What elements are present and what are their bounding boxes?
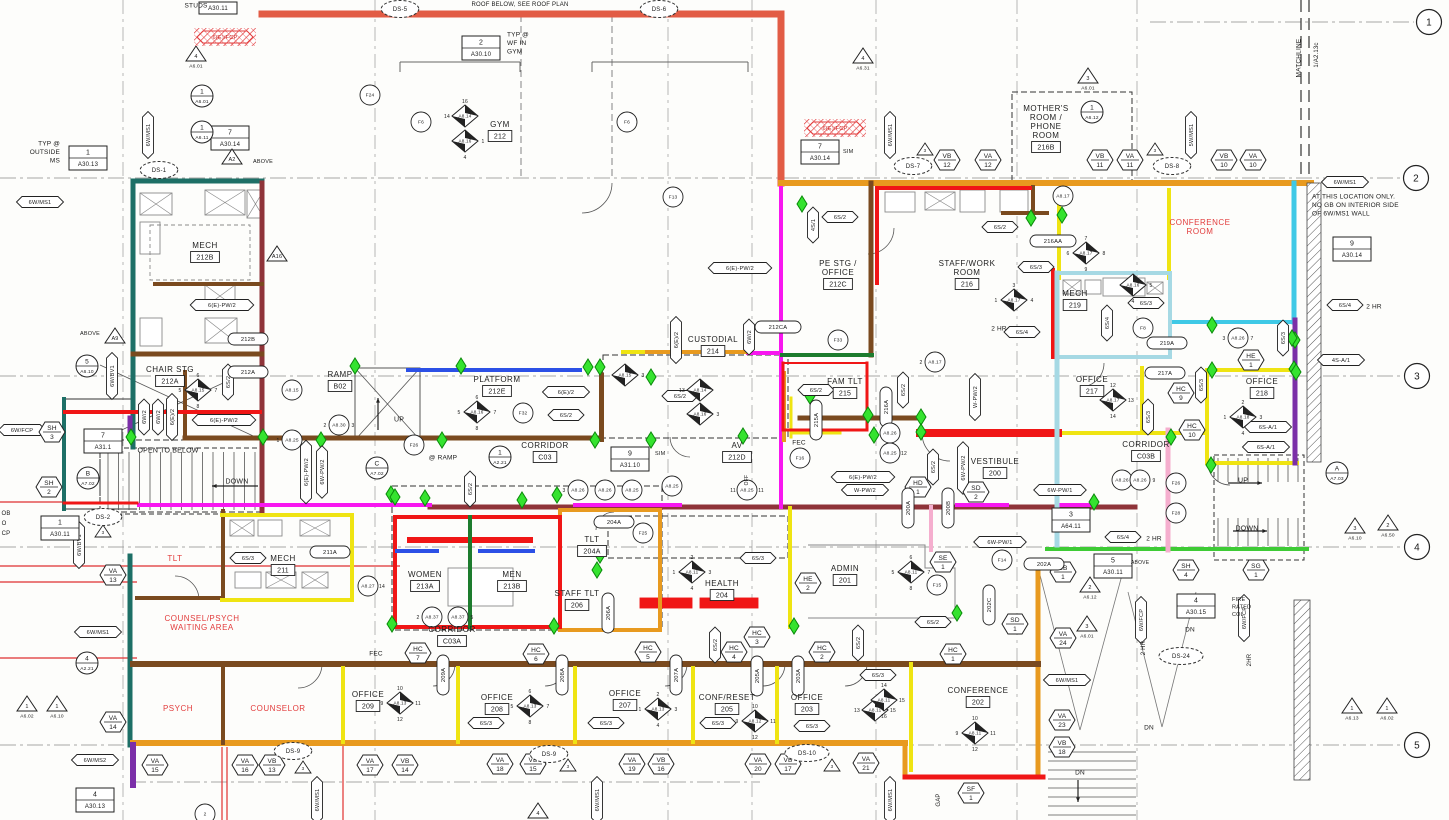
keynote-text: A8.25 [740, 488, 754, 494]
keynote-side-num: 4 [1132, 299, 1135, 305]
ref-number: 1 [200, 88, 204, 95]
tag-text: SD [971, 485, 981, 492]
sheet-number: A30.13 [85, 804, 106, 810]
tag-text: 207A [674, 668, 680, 682]
tag-text: 6W/2 [747, 330, 753, 344]
hatched-wall [1307, 183, 1321, 462]
note-text: 1/A2.13c [1314, 42, 1320, 67]
detail-number: 2 [479, 39, 483, 46]
equipment-box [258, 520, 282, 536]
tag-text: 216AA [1044, 239, 1062, 245]
keynote-side-num: 4 [657, 723, 660, 729]
floor-plan-svg: 6W/MS16(E)-PW/26(E)-PW/26(E)-PW/26(E)/26… [0, 0, 1449, 820]
room-name: OFFICE [1076, 375, 1108, 384]
room-name: HEALTH [705, 579, 739, 588]
tag-text: 6W/FCP [1139, 609, 1145, 631]
room-name: OFFICE [609, 689, 641, 698]
wall-type-tag: 6W-PW/1 [1034, 485, 1087, 496]
keynote-text: F6 [418, 120, 424, 126]
green-diamond-marker [646, 432, 656, 448]
tag-text: 6S/3 [600, 721, 612, 727]
wall-type-tag: 6S/3 [860, 670, 896, 681]
keynote-text: A8.17 [1079, 251, 1092, 256]
note-text: @ RAMP [429, 454, 457, 461]
sheet-number: A7.03 [1330, 476, 1344, 482]
note-text: STUDS [184, 2, 207, 9]
keynote-text: A8.13 [651, 707, 664, 712]
ref-number: 3 [1086, 76, 1089, 82]
keynote-text: A8.11 [969, 731, 982, 736]
section-reference-circle: 1A6.12 [1081, 101, 1103, 123]
room-name: OFFICE [352, 690, 384, 699]
revision-cloud: DS-2 [84, 509, 122, 526]
tag-text: 21 [862, 765, 870, 772]
door-number-tag: 202A [1024, 558, 1064, 570]
keynote-side-num: 12 [397, 717, 403, 723]
room-number: 212 [494, 133, 506, 140]
keynote-text: 2 [204, 812, 207, 818]
wall-type-tag: 6S/3 [468, 718, 504, 729]
wall-type-tag: 6S/4 [1105, 532, 1141, 543]
keynote-side-num: 1 [482, 139, 485, 145]
room-name: STAFF TLT [555, 589, 600, 598]
keynote-side-num: 12 [901, 451, 907, 457]
tag-text: 6W-PW/2 [320, 459, 326, 484]
wall-type-tag: 6S/2 [928, 449, 939, 485]
green-diamond-marker [1207, 317, 1217, 333]
detail-number: 1 [58, 519, 62, 526]
room-name: TLT [584, 535, 599, 544]
equipment-box [1000, 190, 1028, 212]
elevation-triangle-tag: 3A6.10 [1345, 518, 1365, 542]
tag-text: 6(E)/FCP [823, 126, 848, 132]
keynote-circle: F16 [790, 448, 810, 468]
tag-text: 6(E)-PW/2 [849, 475, 877, 481]
tag-text: 13 [268, 767, 276, 774]
elevation-triangle-tag: 3A6.01 [1077, 616, 1097, 640]
detail-reference-box: 1A30.13 [69, 146, 107, 170]
wall-type-tag: 6(E)-PW/2 [190, 300, 254, 311]
keynote-diamond: A8.17314 [995, 283, 1034, 311]
keynote-side-num: 8 [910, 586, 913, 592]
keynote-text: A8.11 [878, 698, 891, 703]
keynote-side-num: 2 [1242, 400, 1245, 406]
keynote-side-num: 1 [639, 707, 642, 713]
ref-number: A9 [111, 336, 118, 342]
room-name-red: ROOM [1187, 227, 1214, 236]
elevation-triangle-tag: 4A6.01 [186, 46, 206, 70]
keynote-circle: F15 [927, 575, 947, 595]
note-text: 2 HR [1146, 535, 1162, 542]
ref-number: C [375, 460, 380, 467]
wall-type-tag: 6W/MS2 [72, 755, 119, 766]
keynote-side-num: 9 [381, 701, 384, 707]
keynote-side-num: 15 [890, 708, 896, 714]
tag-text: 217A [1158, 371, 1172, 377]
tag-text: VA [109, 568, 118, 575]
tag-text: 4 [1184, 572, 1188, 579]
tag-text: 1 [969, 795, 973, 802]
tag-text: 6S/2 [927, 620, 939, 626]
tag-text: 11 [1096, 162, 1103, 169]
tag-text: VA [109, 715, 118, 722]
room-name: WOMEN [408, 570, 442, 579]
sheet-number: A6.31 [856, 66, 870, 72]
wall-type-tag: 6(E)-PW/2 [301, 440, 312, 504]
note-text: TYP @ [38, 140, 60, 147]
keynote-side-num: 8 [529, 720, 532, 726]
wall-type-tag: 6W-PW/1 [974, 537, 1027, 548]
revision-cloud: DS-9 [274, 743, 312, 760]
wall-type-tag: 6(E)/2 [167, 394, 178, 441]
tag-text: 6S/4 [1117, 535, 1129, 541]
door-window-tag: VB12 [934, 150, 960, 170]
note-text: DN [1075, 769, 1085, 776]
tag-text: 3 [50, 434, 54, 441]
room-number: 211 [277, 567, 289, 574]
wall-type-tag: 6S/3 [1196, 367, 1207, 403]
wall-type-tag: 6S/3 [1143, 399, 1154, 435]
room-number: 205 [721, 706, 733, 713]
sheet-number: A2.21 [80, 666, 94, 672]
door-window-tag: VA17 [357, 755, 383, 775]
sheet-number: A30.14 [810, 156, 831, 162]
room-name: OFFICE [481, 693, 513, 702]
keynote-side-num: 16 [462, 99, 468, 105]
tag-text: 1 [916, 489, 920, 496]
tag-text: VB [1057, 740, 1066, 747]
tag-text: 6(E)-PW/2 [726, 266, 754, 272]
keynote-circle: A8.26 [880, 423, 900, 443]
note-text: UP [1238, 477, 1248, 484]
door-number-tag: 212B [228, 333, 268, 345]
room-number: 212B [196, 254, 213, 261]
tag-text: HC [948, 647, 958, 654]
tag-text: 5W/MS1 [1189, 124, 1195, 147]
green-diamond-marker [797, 196, 807, 212]
note-text: ABOVE [1131, 560, 1150, 566]
keynote-side-num: 9 [1153, 478, 1156, 484]
tag-text: HC [817, 645, 827, 652]
keynote-circle: A8.25 [662, 476, 682, 496]
door-swing-arc [582, 183, 612, 213]
section-reference-circle: 1A6.01 [191, 85, 213, 107]
cloud-text: DS-2 [96, 515, 111, 521]
note-text: ROOF BELOW, SEE ROOF PLAN [471, 2, 568, 8]
tag-text: 1 [941, 564, 945, 571]
hatched-wall [1294, 600, 1310, 780]
keynote-text: F14 [998, 558, 1007, 564]
equipment-box [885, 192, 915, 212]
room-number: 217 [1086, 388, 1098, 395]
door-number-tag: 200B [942, 488, 954, 528]
tag-text: 5 [646, 654, 650, 661]
keynote-circle: A8.15 [282, 380, 302, 400]
sheet-number: A6.10 [80, 369, 94, 375]
tag-text: 23 [1058, 722, 1066, 729]
casework-red [640, 598, 692, 608]
tag-text: HC [729, 645, 739, 652]
keynote-text: A8.11 [869, 708, 882, 713]
keynote-text: A8.18 [1236, 415, 1249, 420]
elevation-triangle-tag: A16 [267, 246, 287, 261]
ref-number: 4 [861, 56, 864, 62]
room-number: 215 [839, 390, 851, 397]
door-window-tag: HC2 [809, 642, 835, 662]
wall-type-tag: 6W/2 [139, 399, 150, 435]
tag-text: 17 [784, 766, 792, 773]
door-window-tag: VA19 [619, 754, 645, 774]
tag-text: 10 [1220, 162, 1228, 169]
keynote-side-num: 14 [1110, 414, 1116, 420]
tag-text: 14 [401, 767, 409, 774]
tag-text: 6S/2 [560, 413, 572, 419]
keynote-circle: A8.3023 [324, 415, 355, 435]
tag-text: VA [241, 758, 250, 765]
sheet-number: A6.12 [1085, 115, 1099, 121]
keynote-circle: A8.26 [1112, 470, 1132, 490]
keynote-text: A8.26 [571, 488, 585, 494]
door-window-tag: VA18 [487, 754, 513, 774]
detail-number: 7 [228, 129, 232, 136]
room-name: OFFICE [822, 268, 854, 277]
keynote-text: F28 [1172, 511, 1181, 517]
revision-cloud: DS-1 [140, 162, 178, 179]
tag-text: 4S-A/1 [1332, 358, 1350, 364]
door-window-tag: HC1 [940, 644, 966, 664]
door-window-tag: SH3 [39, 422, 65, 442]
room-number: C03 [538, 454, 551, 461]
room-name: MOTHER'S [1023, 104, 1069, 113]
ref-number: 4 [194, 54, 197, 60]
room-name-red: COUNSEL/PSYCH [165, 614, 240, 623]
stair-outline [1214, 455, 1304, 560]
elevation-triangle-tag: 1A6.02 [17, 696, 37, 720]
tag-text: 6S/3 [1199, 379, 1205, 391]
note-text: SIM [843, 149, 854, 155]
door-number-tag: 216A [880, 387, 892, 427]
note-text: ABOVE [253, 159, 273, 165]
sheet-number: A30.11 [50, 532, 70, 538]
tag-text: 6S/2 [856, 637, 862, 649]
keynote-text: A8.27 [361, 584, 375, 590]
tag-text: 204A [607, 520, 621, 526]
grid-bubble: 2 [1404, 166, 1429, 191]
tag-text: 6W/MS1 [888, 124, 894, 147]
tag-text: 205A [755, 669, 761, 683]
revision-number: 3 [924, 148, 927, 153]
tag-text: 219A [1160, 341, 1174, 347]
tag-text: VA [984, 153, 993, 160]
keynote-text: A8.26 [1231, 336, 1245, 342]
door-number-tag: 206A [602, 593, 614, 633]
tag-text: 2 [820, 654, 824, 661]
tag-text: SE [938, 555, 948, 562]
keynote-side-num: 13 [1128, 398, 1134, 404]
revision-triangle: 3 [1147, 143, 1163, 155]
tag-text: 6S/2 [994, 225, 1006, 231]
green-diamond-marker [916, 424, 926, 440]
elevation-triangle-tag: 2A6.12 [1080, 577, 1100, 601]
detail-number: 4 [1194, 597, 1198, 604]
keynote-side-num: 6 [476, 395, 479, 401]
tag-text: 6S/2 [468, 483, 474, 495]
wall-type-tag: 6W/FCP [0, 425, 46, 436]
cloud-text: DS-9 [286, 749, 301, 755]
detail-number: 3 [1069, 511, 1073, 518]
keynote-diamond: A8.111091112 [956, 716, 996, 753]
keynote-text: F25 [639, 531, 648, 537]
room-number: C03B [1137, 453, 1155, 460]
note-text: 2 HR [991, 325, 1007, 332]
keynote-side-num: 2 [417, 615, 420, 621]
ref-number: A2 [228, 157, 235, 163]
tag-text: 4S/1 [811, 219, 817, 231]
keynote-circle: A8.263 [563, 480, 588, 500]
revision-number: 3 [831, 764, 834, 769]
arrow-head [1257, 481, 1262, 485]
keynote-text: F16 [796, 456, 805, 462]
keynote-side-num: 6 [910, 555, 913, 561]
tag-text: 6S/2 [901, 384, 907, 396]
wall-type-tag: 6S-A/1 [1245, 422, 1292, 433]
tag-text: 6S/2 [834, 215, 846, 221]
keynote-side-num: 5 [179, 388, 182, 394]
wall-type-tag: W-PW/2 [970, 374, 981, 421]
tag-text: 6S/3 [712, 721, 724, 727]
keynote-circle: A8.26 [595, 480, 615, 500]
tag-text: 6W/MS1 [595, 789, 601, 812]
room-name: STAFF/WORK [939, 259, 996, 268]
wall-type-tag: 6S/3 [794, 721, 830, 732]
wall-type-tag: 6S/4 [1004, 327, 1040, 338]
note-text: DN [1144, 724, 1154, 731]
keynote-side-num: 3 [563, 488, 566, 494]
room-name: CONF/RESET [699, 693, 756, 702]
keynote-text: F8 [1140, 326, 1146, 332]
keynote-text: A8.26 [883, 431, 897, 437]
note-text: FIRE [1232, 597, 1245, 603]
room-name: RAMP [327, 370, 352, 379]
wall-type-tag: 6W/FCP [1136, 597, 1147, 644]
keynote-side-num: 3 [709, 570, 712, 576]
door-window-tag: HC3 [744, 627, 770, 647]
note-text: DOWN [1236, 525, 1259, 532]
keynote-side-num: 11 [990, 731, 996, 737]
revision-number: 3 [567, 764, 570, 769]
note-text: OPEN TO BELOW [137, 447, 198, 454]
room-number: 213A [416, 583, 433, 590]
keynote-side-num: 1 [995, 298, 998, 304]
keynote-side-num: 7 [1251, 336, 1254, 342]
note-text: OB [1, 511, 10, 517]
tag-text: 1 [1254, 572, 1258, 579]
keynote-side-num: 3 [675, 707, 678, 713]
room-name: PE STG / [819, 259, 857, 268]
section-reference-circle: 1A6.11 [191, 121, 213, 143]
cloud-text: DS-6 [652, 7, 667, 13]
note-text: 2 HR [1141, 640, 1147, 655]
sheet-number: A64.11 [1061, 524, 1081, 530]
tag-text: 212A [241, 370, 255, 376]
keynote-side-num: 3 [352, 423, 355, 429]
wall-type-tag: 6S-A/1 [1243, 442, 1290, 453]
keynote-side-num: 1 [277, 438, 280, 444]
tag-text: VA [151, 758, 160, 765]
revision-triangle: 3 [824, 759, 840, 771]
detail-reference-box: 7A30.14 [801, 140, 839, 164]
room-number: 213B [503, 583, 520, 590]
sheet-number: A30.10 [471, 52, 492, 58]
door-number-tag: 207A [670, 655, 682, 695]
room-name-red: PSYCH [163, 704, 193, 713]
tag-text: 200A [906, 501, 912, 515]
detail-reference-box: 3A64.11 [1052, 508, 1090, 532]
grid-number: 1 [1426, 18, 1432, 29]
keynote-side-num: 11 [770, 719, 776, 725]
keynote-side-num: 4 [1031, 298, 1034, 304]
tag-text: 6W-PW/1 [1047, 488, 1072, 494]
wall-type-tag: 4S-A/1 [1318, 355, 1365, 366]
tag-text: VA [366, 758, 375, 765]
detail-number: 9 [628, 450, 632, 457]
detail-reference-box: 7A31.1 [84, 429, 122, 453]
tag-text: 211A [323, 550, 337, 556]
sheet-number: A6.10 [50, 714, 64, 720]
keynote-circle: F32 [513, 403, 533, 423]
tag-text: 14 [109, 724, 117, 731]
wall-type-tag: 6S/2 [915, 617, 951, 628]
keynote-text: A8.17 [1056, 194, 1070, 200]
keynote-side-num: 8 [476, 426, 479, 432]
tag-text: 6S/3 [242, 556, 254, 562]
tag-text: 2 [47, 489, 51, 496]
tag-text: 10 [1188, 432, 1196, 439]
tag-text: SH [47, 425, 57, 432]
keynote-text: A8.11 [686, 570, 699, 575]
tag-text: 17 [366, 767, 374, 774]
cloud-text: DS-7 [906, 164, 921, 170]
keynote-text: F24 [366, 93, 375, 99]
green-diamond-marker [552, 487, 562, 503]
tag-text: HD [913, 480, 923, 487]
tag-text: 200B [946, 501, 952, 515]
keynote-side-num: 4 [691, 586, 694, 592]
room-number: 212A [161, 378, 178, 385]
keynote-diamond: A8.121091112 [736, 704, 776, 741]
ref-number: 2 [1088, 585, 1091, 591]
tag-text: 2 [806, 585, 810, 592]
tag-text: 6W/2 [156, 410, 162, 424]
keynote-circle: F6 [411, 112, 431, 132]
door-number-tag: 205A [751, 656, 763, 696]
revision-cloud: DS-7 [894, 158, 932, 175]
keynote-side-num: 5 [1150, 283, 1153, 289]
tag-text: 6W/2 [142, 410, 148, 424]
sheet-number: A6.11 [195, 135, 208, 141]
section-reference-circle: BA7.02 [77, 467, 99, 489]
room-name: OFFICE [1246, 377, 1278, 386]
room-name: AV [731, 441, 742, 450]
wall-type-tag: 6(E)-PW/2 [708, 263, 772, 274]
tag-text: 9 [1179, 395, 1183, 402]
keynote-text: A8.30 [332, 423, 346, 429]
keynote-diamond: A8.163 [687, 403, 720, 425]
door-number-tag: 211A [310, 546, 350, 558]
keynote-side-num: 5 [511, 704, 514, 710]
room-name: ADMIN [831, 564, 859, 573]
note-text: WF IN [507, 40, 527, 47]
